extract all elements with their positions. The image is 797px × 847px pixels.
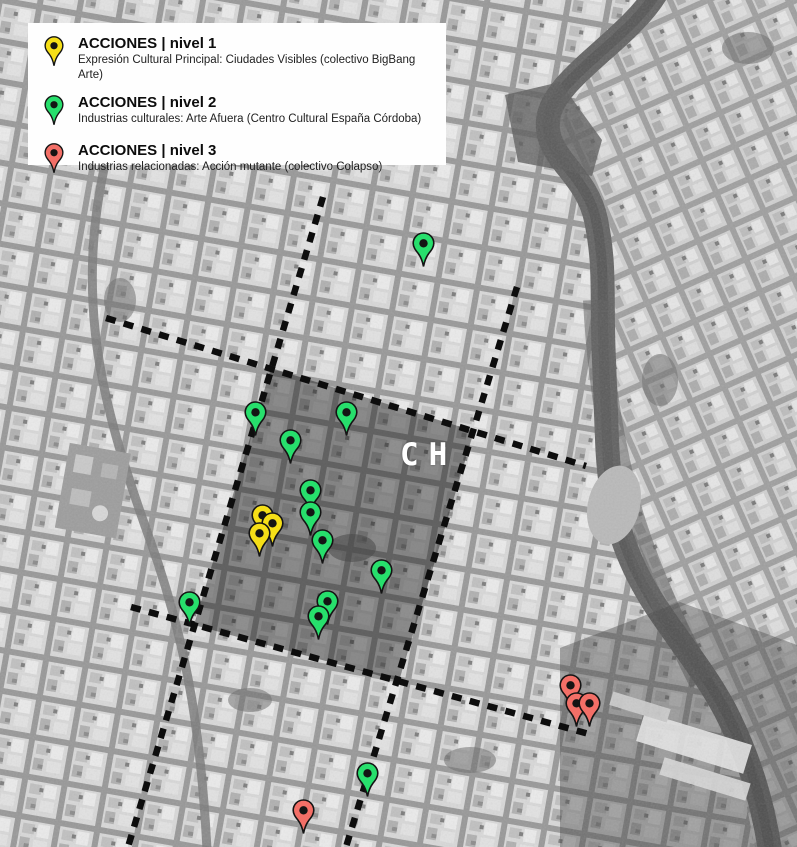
map-pin-level2[interactable] xyxy=(356,762,379,798)
legend-pin-icon-level3 xyxy=(44,143,66,179)
ch-zone-label: CH xyxy=(400,440,490,471)
map-pin-level2[interactable] xyxy=(311,529,334,565)
legend-item-level3: ACCIONES | nivel 3Industrias relacionada… xyxy=(44,142,436,179)
legend-item-title: ACCIONES | nivel 3 xyxy=(78,142,382,159)
legend-pin-icon-level2 xyxy=(44,95,66,131)
map-pin-level3[interactable] xyxy=(578,692,601,728)
legend-panel: ACCIONES | nivel 1Expresión Cultural Pri… xyxy=(28,23,446,165)
map-pin-level2[interactable] xyxy=(178,591,201,627)
legend-item-title: ACCIONES | nivel 1 xyxy=(78,35,436,52)
map-pin-level2[interactable] xyxy=(279,429,302,465)
legend-item-level2: ACCIONES | nivel 2Industrias culturales:… xyxy=(44,94,436,131)
legend-item-text: ACCIONES | nivel 3Industrias relacionada… xyxy=(78,142,382,175)
map-pin-level2[interactable] xyxy=(370,559,393,595)
map-pin-level3[interactable] xyxy=(292,799,315,835)
legend-item-text: ACCIONES | nivel 1Expresión Cultural Pri… xyxy=(78,35,436,83)
legend-item-level1: ACCIONES | nivel 1Expresión Cultural Pri… xyxy=(44,35,436,83)
legend-item-description: Expresión Cultural Principal: Ciudades V… xyxy=(78,53,436,83)
map-pin-level2[interactable] xyxy=(244,401,267,437)
map-pin-level1[interactable] xyxy=(248,522,271,558)
legend-item-title: ACCIONES | nivel 2 xyxy=(78,94,421,111)
map-pin-level2[interactable] xyxy=(307,605,330,641)
legend-item-description: Industrias relacionadas: Acción mutante … xyxy=(78,160,382,175)
map-pin-level2[interactable] xyxy=(335,401,358,437)
legend-item-text: ACCIONES | nivel 2Industrias culturales:… xyxy=(78,94,421,127)
map-pin-level2[interactable] xyxy=(412,232,435,268)
map-screenshot: CH ACCIONES | nivel 1Expresión Cultural … xyxy=(0,0,797,847)
legend-pin-icon-level1 xyxy=(44,36,66,72)
legend-item-description: Industrias culturales: Arte Afuera (Cent… xyxy=(78,112,421,127)
